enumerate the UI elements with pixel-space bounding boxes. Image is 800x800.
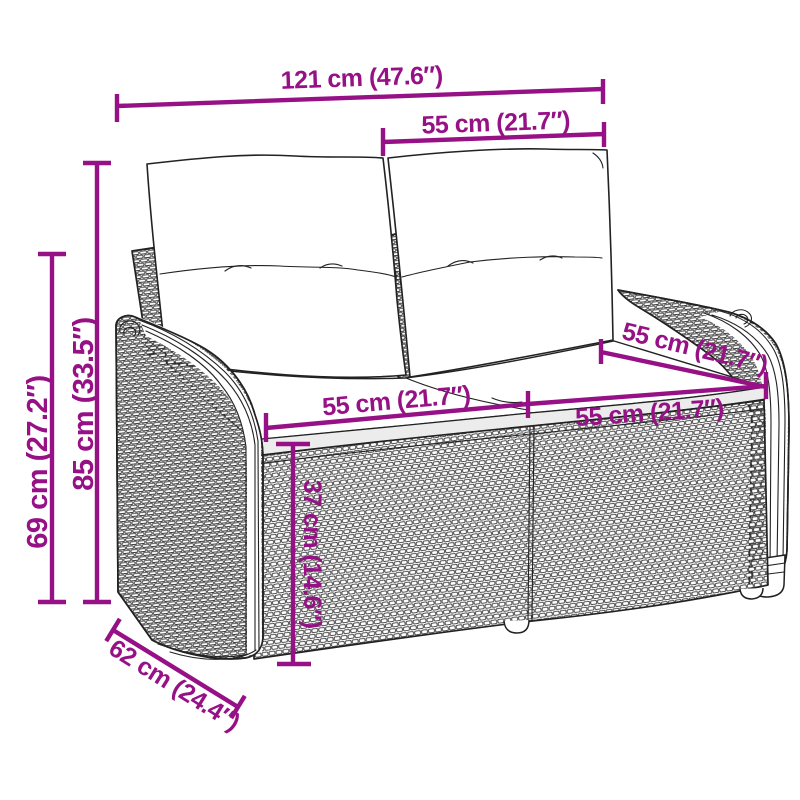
diagram-canvas: 121 cm (47.6″) 55 cm (21.7″) 85 cm (33.5… xyxy=(0,0,800,800)
dim-seat-height-label: 37 cm (14.6″) xyxy=(298,480,326,629)
dim-back-section-width: 55 cm (21.7″) xyxy=(383,106,604,156)
dim-total-height: 85 cm (33.5″) xyxy=(68,163,111,602)
dim-total-height-label: 85 cm (33.5″) xyxy=(68,317,100,490)
dim-back-section-width-label: 55 cm (21.7″) xyxy=(421,106,571,139)
base-foot-right xyxy=(740,588,763,599)
product-dimension-diagram: 121 cm (47.6″) 55 cm (21.7″) 85 cm (33.5… xyxy=(0,0,800,800)
dim-armrest-height: 69 cm (27.2″) xyxy=(22,254,66,602)
back-cushion-right xyxy=(388,149,613,377)
dim-armrest-height-label: 69 cm (27.2″) xyxy=(22,375,54,548)
dim-total-width-label: 121 cm (47.6″) xyxy=(280,61,443,95)
base-foot-middle xyxy=(504,620,529,633)
